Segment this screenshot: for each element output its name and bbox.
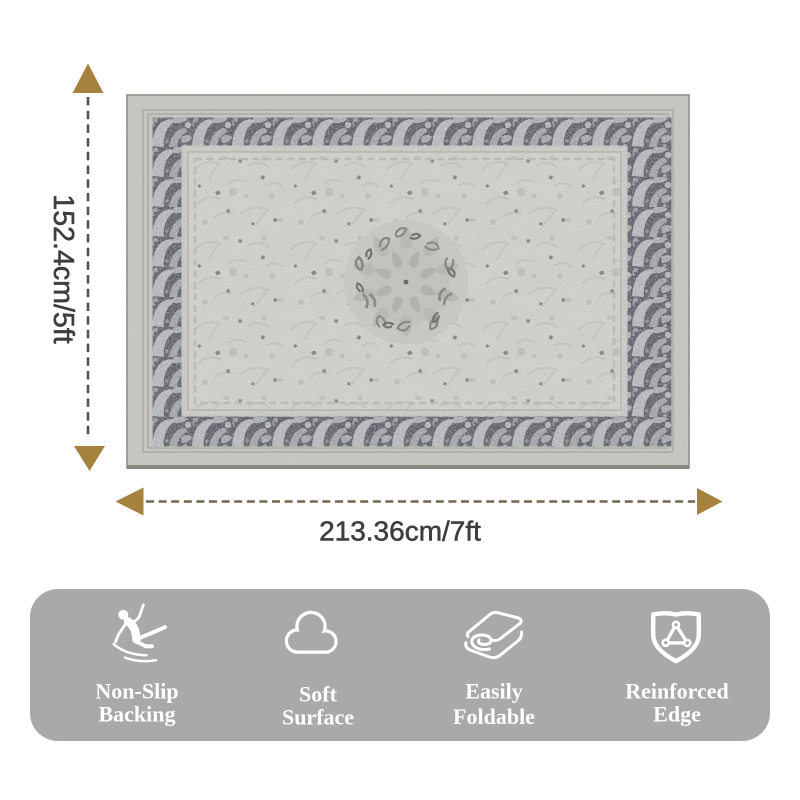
svg-text:Backing: Backing	[98, 702, 175, 727]
svg-text:Surface: Surface	[282, 705, 354, 730]
svg-text:Foldable: Foldable	[453, 704, 535, 729]
svg-text:Easily: Easily	[465, 679, 522, 704]
svg-text:Soft: Soft	[299, 682, 338, 707]
svg-text:Non-Slip: Non-Slip	[95, 679, 178, 704]
svg-text:152.4cm/5ft: 152.4cm/5ft	[47, 194, 79, 343]
svg-text:213.36cm/7ft: 213.36cm/7ft	[319, 516, 481, 547]
svg-text:Reinforced: Reinforced	[625, 679, 728, 704]
svg-text:Edge: Edge	[653, 702, 701, 727]
